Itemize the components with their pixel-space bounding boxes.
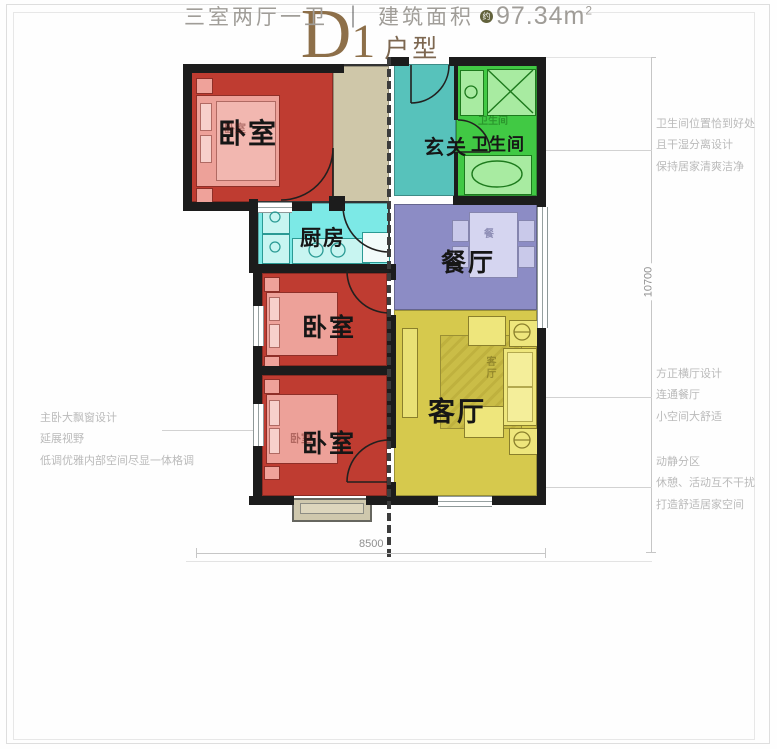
unit-spec: 三室两厅一卫 ｜ 建筑面积 约 97.34 m2 — [0, 0, 777, 32]
pillow — [269, 400, 280, 426]
dimension-line-right — [651, 57, 652, 553]
window — [438, 496, 492, 507]
spec-area-unit: m2 — [564, 2, 594, 31]
pillow — [200, 135, 212, 163]
kitchen-cabinet — [262, 234, 290, 264]
label-entry: 玄关 — [424, 131, 468, 160]
annotation-line: 小空间大舒适 — [656, 407, 722, 428]
annotation-line: 延展视野 — [40, 429, 194, 450]
chair — [452, 220, 469, 242]
sofa-cushion — [507, 352, 533, 387]
room-entry — [394, 64, 456, 196]
pillow — [200, 103, 212, 131]
chair — [518, 220, 535, 242]
floor-plan-canvas: 卧室 卧室 玄关 卫生间 卫生间 厨房 餐厅 餐 卧室 卧室 卧室 客厅 客厅 … — [0, 0, 777, 749]
spec-area-label: 建筑面积 — [378, 1, 474, 31]
annotation-line: 休憩、活动互不干扰 — [656, 473, 755, 494]
bay-window — [292, 498, 372, 522]
label-bedroom-3-watermark: 卧室 — [290, 430, 312, 446]
wall-segment — [253, 264, 262, 306]
label-bathroom: 卫生间 — [471, 130, 525, 155]
bay-window-inner — [300, 503, 364, 514]
annotation-bathroom: 卫生间位置恰到好处 且干湿分离设计 保持居家清爽洁净 — [656, 114, 755, 178]
label-bedroom-2: 卧室 — [302, 308, 356, 344]
dimension-tick — [646, 552, 656, 553]
wall-segment — [253, 346, 262, 404]
annotation-line: 主卧大飘窗设计 — [40, 408, 194, 429]
label-kitchen: 厨房 — [300, 222, 346, 252]
pillow — [269, 324, 280, 348]
bathroom-cabinet — [460, 70, 484, 116]
wall-segment — [329, 196, 345, 211]
dimension-tick — [196, 548, 197, 558]
annotation-line: 连通餐厅 — [656, 385, 722, 406]
unit-suffix: 户型 — [384, 29, 440, 65]
label-living-rug-mark: 客厅 — [482, 356, 497, 380]
annotation-line: 且干湿分离设计 — [656, 135, 755, 156]
nightstand — [264, 379, 280, 394]
leader-line-bathroom — [546, 150, 652, 151]
unit-sup: 2 — [585, 3, 593, 17]
armchair — [468, 316, 506, 346]
wall-segment — [249, 264, 394, 273]
fridge — [362, 232, 390, 263]
wall-segment — [292, 202, 312, 211]
sofa-cushion — [507, 387, 533, 422]
annotation-line: 动静分区 — [656, 452, 755, 473]
nightstand — [196, 78, 213, 94]
chair — [518, 246, 535, 268]
wall-segment — [537, 328, 546, 505]
boundary-dashed-line — [387, 57, 391, 557]
label-bedroom-1-watermark: 卧室 — [224, 120, 246, 136]
window — [253, 404, 264, 446]
annotation-line: 卫生间位置恰到好处 — [656, 114, 755, 135]
approx-badge: 约 — [480, 10, 493, 23]
annotation-line: 打造舒适居家空间 — [656, 495, 755, 516]
annotation-line: 方正横厅设计 — [656, 364, 722, 385]
tv-cabinet — [402, 328, 418, 418]
dimension-extension-bottom — [186, 561, 652, 562]
spec-area-value: 97.34 — [496, 2, 564, 31]
bathtub — [464, 155, 532, 195]
leader-line-zoning — [546, 487, 652, 488]
room-corridor — [333, 64, 389, 204]
wall-segment — [249, 199, 258, 269]
window — [255, 202, 292, 213]
label-living: 客厅 — [428, 390, 486, 429]
annotation-line: 低调优雅内部空间尽显一体格调 — [40, 451, 194, 472]
dimension-tick — [545, 548, 546, 558]
nightstand — [196, 188, 213, 203]
dimension-height-value: 10700 — [642, 264, 654, 301]
label-dining-table-mark: 餐 — [484, 225, 494, 240]
wall-segment — [537, 57, 546, 207]
wall-segment — [183, 64, 192, 211]
spec-divider: ｜ — [342, 0, 364, 32]
pillow — [269, 297, 280, 321]
dimension-width-value: 8500 — [356, 538, 386, 550]
shower — [487, 69, 536, 116]
pillow — [269, 428, 280, 454]
wall-segment — [454, 64, 458, 120]
window — [537, 207, 548, 328]
side-table — [509, 428, 538, 455]
label-dining: 餐厅 — [441, 243, 495, 279]
dimension-line-bottom — [196, 553, 546, 554]
annotation-zoning: 动静分区 休憩、活动互不干扰 打造舒适居家空间 — [656, 452, 755, 516]
side-table — [509, 320, 538, 347]
wall-segment — [253, 366, 394, 375]
annotation-line: 保持居家清爽洁净 — [656, 157, 755, 178]
leader-line-living — [546, 397, 652, 398]
wall-segment — [249, 496, 294, 505]
nightstand — [264, 466, 280, 480]
window — [253, 306, 264, 346]
wall-segment — [366, 496, 398, 505]
nightstand — [264, 277, 280, 292]
annotation-living: 方正横厅设计 连通餐厅 小空间大舒适 — [656, 364, 722, 428]
wall-segment — [453, 196, 546, 205]
spec-rooms: 三室两厅一卫 — [184, 1, 328, 31]
annotation-bedroom: 主卧大飘窗设计 延展视野 低调优雅内部空间尽显一体格调 — [40, 408, 194, 472]
wall-segment — [183, 202, 255, 211]
wall-segment — [396, 496, 438, 505]
unit-m: m — [564, 2, 586, 30]
label-bathroom-watermark: 卫生间 — [478, 112, 508, 127]
